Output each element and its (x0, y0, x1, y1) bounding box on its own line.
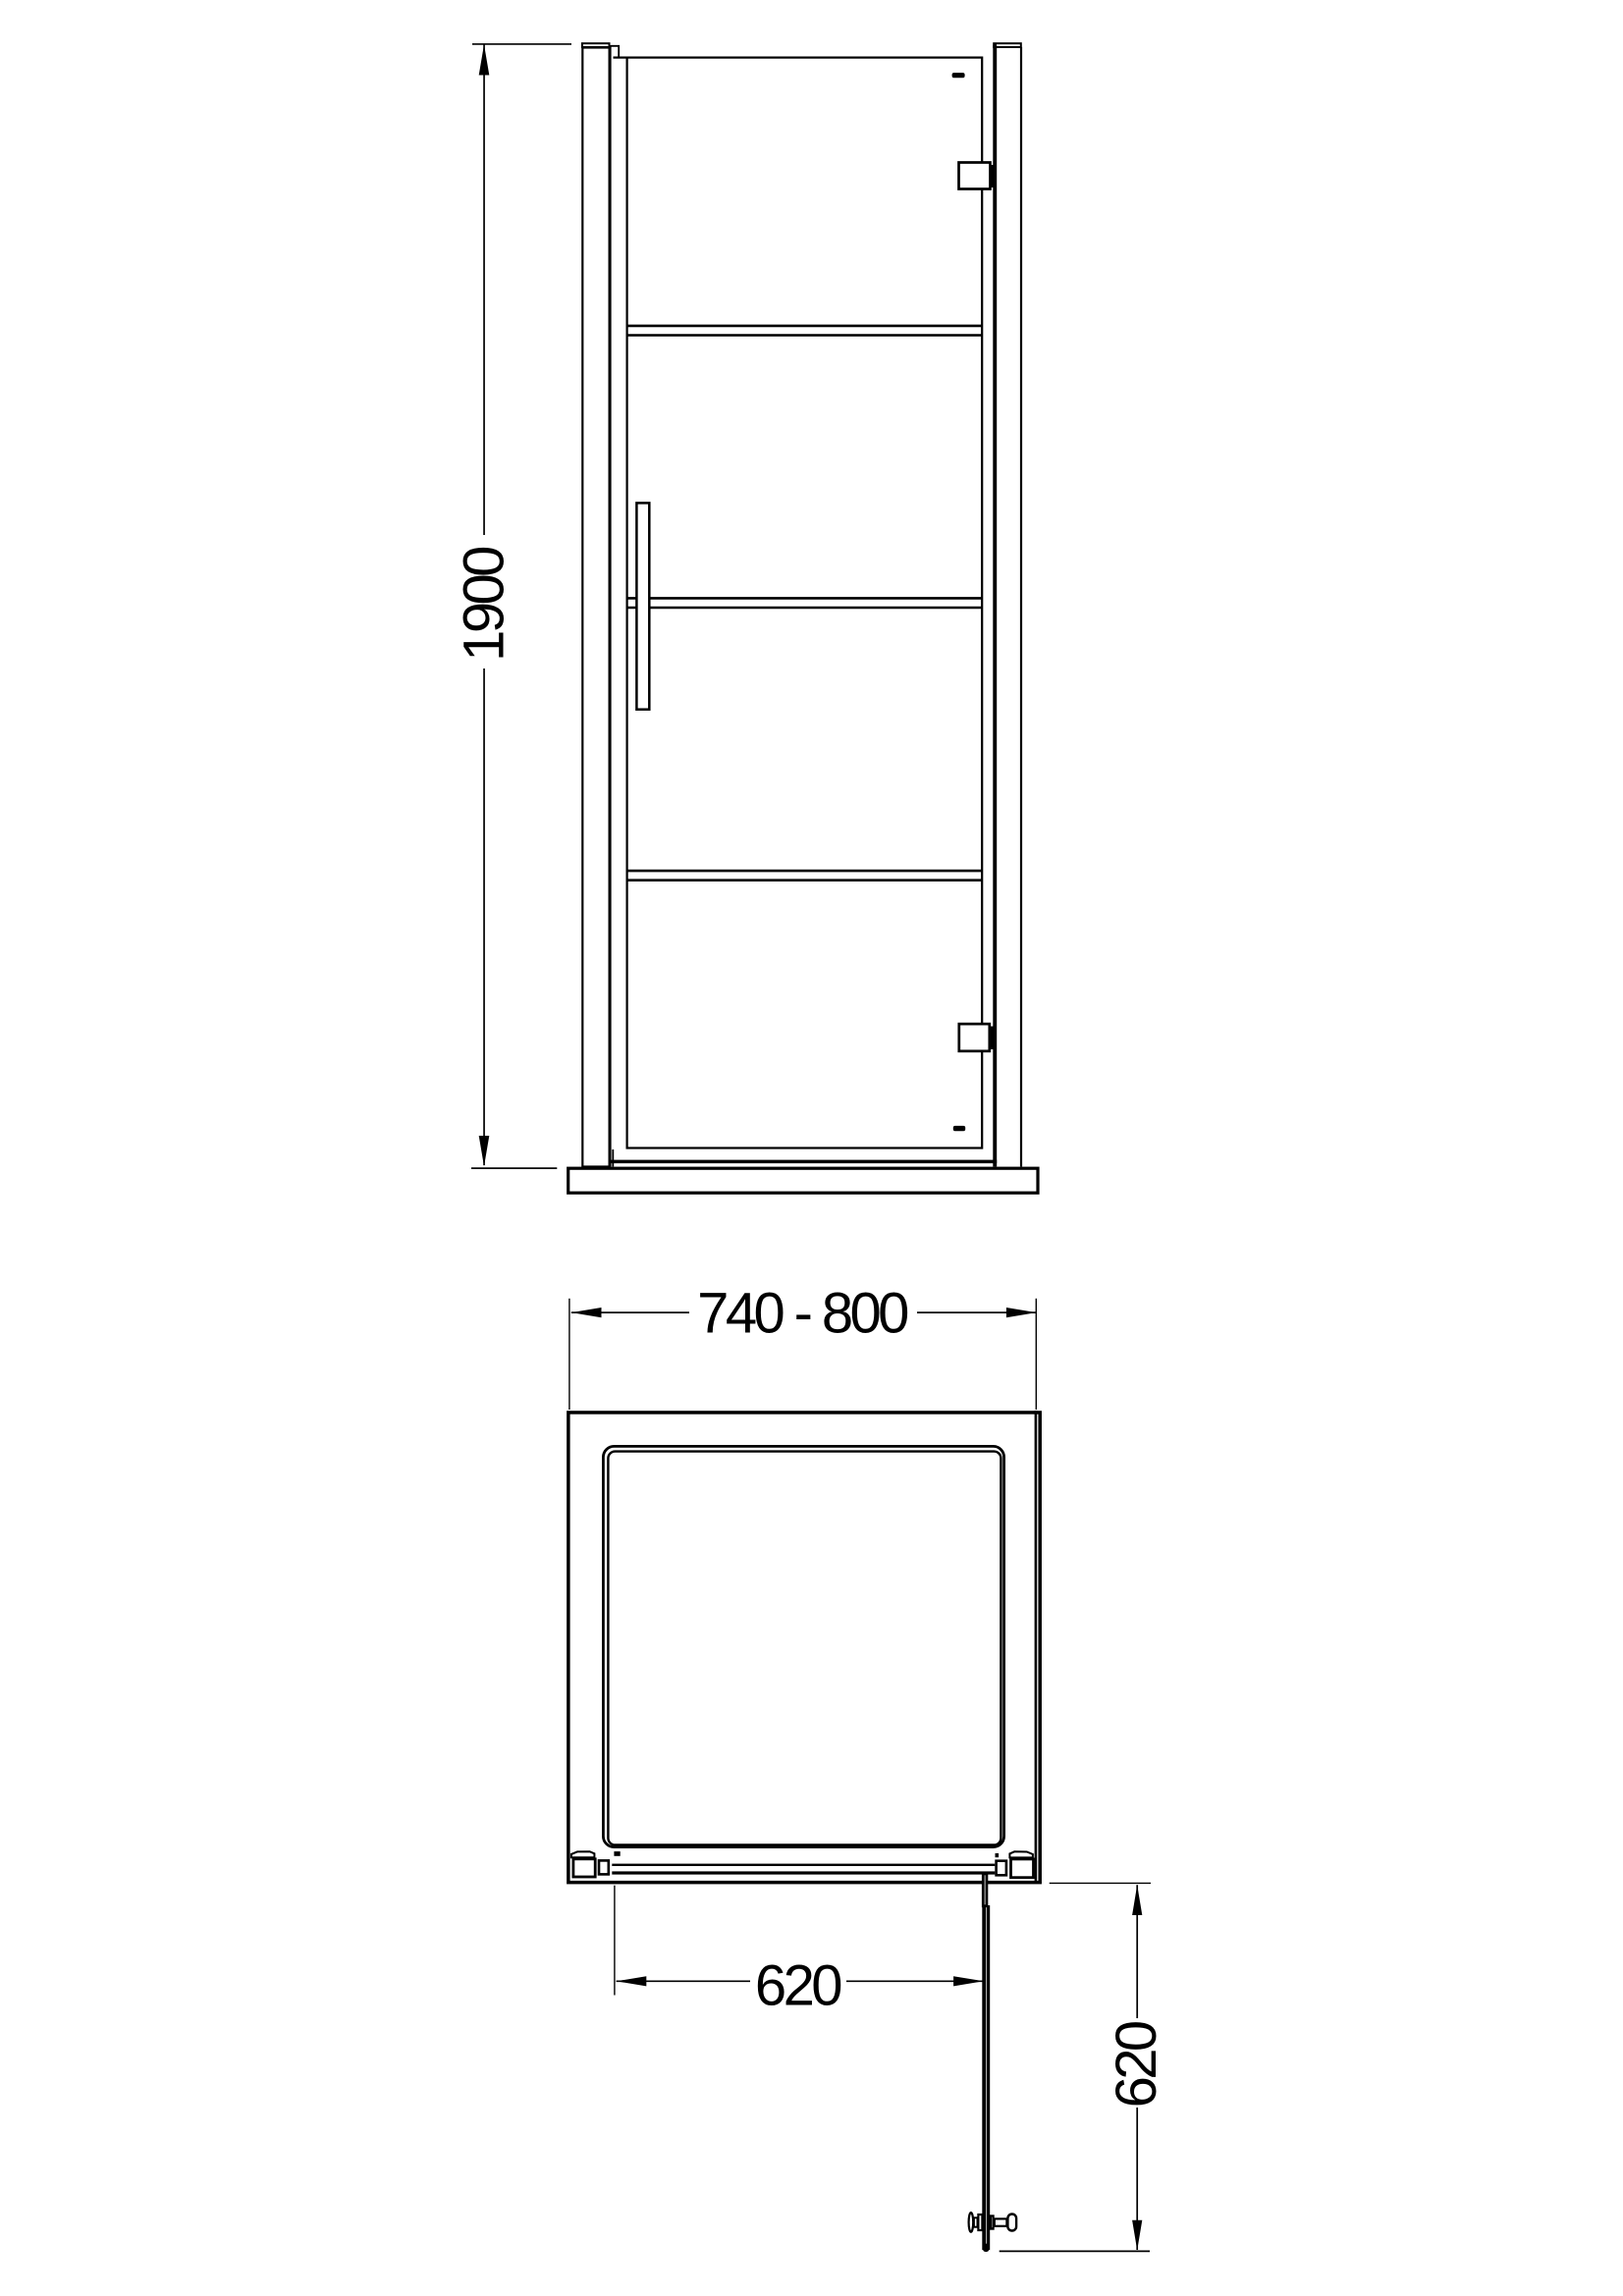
svg-text:740 - 800: 740 - 800 (697, 1281, 907, 1345)
svg-text:1900: 1900 (453, 548, 516, 662)
svg-text:620: 620 (1105, 2022, 1168, 2108)
svg-text:620: 620 (755, 1953, 840, 2017)
